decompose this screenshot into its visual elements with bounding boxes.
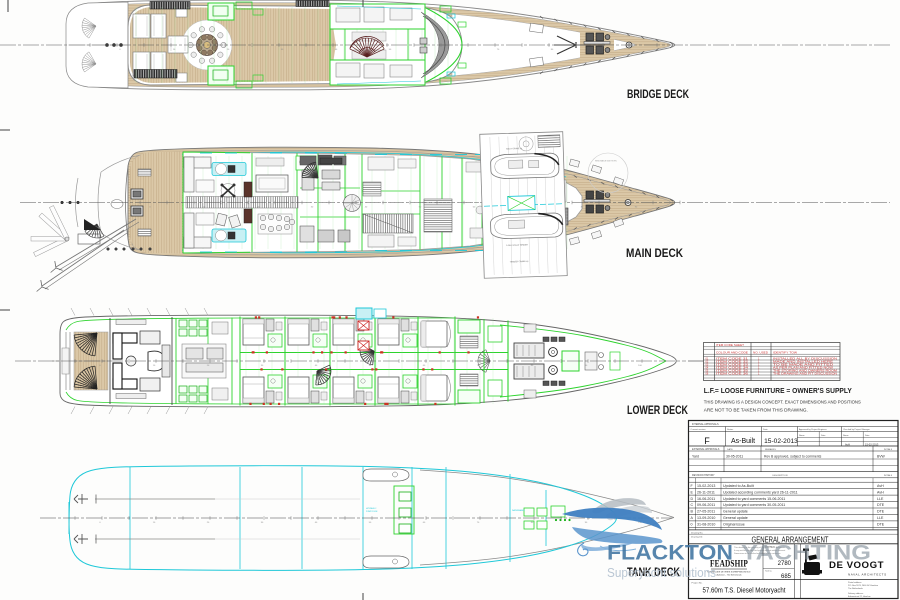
svg-text:Approved by Project Engineer: Approved by Project Engineer — [799, 428, 827, 431]
svg-text:Status: Status — [727, 428, 734, 431]
svg-text:Edisonstraat 22, Haarlem: Edisonstraat 22, Haarlem — [848, 595, 871, 598]
svg-text:13-09-2010: 13-09-2010 — [697, 516, 715, 520]
svg-text:INITIALS: INITIALS — [884, 474, 893, 477]
svg-text:WATERMAKER: WATERMAKER — [512, 509, 525, 512]
svg-text:Postal address:: Postal address: — [848, 581, 862, 584]
svg-text:Rev B approved, subject to com: Rev B approved, subject to comments — [764, 455, 822, 459]
svg-text:57.60m T.S. Diesel Motoryacht: 57.60m T.S. Diesel Motoryacht — [703, 586, 787, 595]
svg-text:D: D — [691, 497, 694, 501]
svg-text:Original issue: Original issue — [723, 523, 745, 527]
svg-text:Yard: Yard — [692, 455, 699, 459]
svg-text:L.F.= LOOSE FURNITURE = OWNER': L.F.= LOOSE FURNITURE = OWNER'S SUPPLY — [704, 386, 852, 395]
svg-text:DESCRIPTION: DESCRIPTION — [773, 475, 788, 477]
svg-text:30-05-2011: 30-05-2011 — [726, 455, 743, 459]
svg-text:Drawing title: Drawing title — [691, 535, 703, 538]
svg-text:REMOVABLE SIDE HORN: REMOVABLE SIDE HORN — [595, 160, 617, 163]
svg-text:15-02-2013: 15-02-2013 — [764, 438, 798, 445]
svg-text:AvH: AvH — [877, 490, 884, 494]
svg-text:THIS DRAWING IS A DESIGN CONCE: THIS DRAWING IS A DESIGN CONCEPT. EXACT … — [704, 399, 861, 404]
svg-text:Project No.: Project No. — [692, 582, 703, 585]
svg-text:Drawing No.: Drawing No. — [691, 531, 703, 534]
svg-text:Updated to yard comments 15-06: Updated to yard comments 15-06-2011 — [723, 497, 785, 501]
svg-text:The Netherlands: The Netherlands — [848, 587, 863, 590]
svg-text:0: 0 — [691, 523, 693, 527]
svg-text:ITEM CODE SHEET: ITEM CODE SHEET — [716, 343, 744, 347]
svg-text:ARE NOT TO BE TAKEN FROM THIS: ARE NOT TO BE TAKEN FROM THIS DRAWING. — [704, 408, 808, 413]
svg-text:LLE: LLE — [877, 516, 884, 520]
svg-text:IDENTIFY TOW: IDENTIFY TOW — [773, 352, 798, 355]
svg-text:FLACKTON: FLACKTON — [607, 541, 733, 565]
svg-text:DTE: DTE — [877, 510, 885, 514]
svg-text:EXTERNAL APPROVALS: EXTERNAL APPROVALS — [692, 448, 720, 451]
svg-text:LOWER DECK: LOWER DECK — [627, 405, 689, 417]
svg-text:Name: Name — [799, 435, 805, 437]
svg-text:DTE: DTE — [877, 503, 885, 507]
svg-text:MAIN DECK: MAIN DECK — [626, 248, 684, 260]
svg-text:LLE: LLE — [877, 497, 884, 501]
svg-text:P.O. Box 5123, 2600 GC Haarlem: P.O. Box 5123, 2600 GC Haarlem — [848, 585, 878, 587]
svg-text:16-06-2011: 16-06-2011 — [697, 497, 715, 501]
svg-text:BRIDGE DECK: BRIDGE DECK — [627, 89, 690, 101]
svg-text:ITEM CODE 36: ITEM CODE 36 — [716, 373, 749, 376]
svg-text:Name: Name — [843, 435, 849, 437]
svg-text:Superyacht solutions: Superyacht solutions — [607, 565, 716, 580]
svg-text:INITIALS: INITIALS — [884, 448, 893, 451]
svg-text:As-Built: As-Built — [731, 438, 755, 445]
svg-text:Aalsmeer - The Netherlands: Aalsmeer - The Netherlands — [717, 574, 742, 577]
svg-text:Current version: Current version — [691, 428, 707, 431]
svg-text:31-08-2010: 31-08-2010 — [697, 523, 715, 527]
svg-text:HYDRAULIC: HYDRAULIC — [366, 507, 377, 510]
svg-text:Yard no.: Yard no. — [765, 570, 772, 573]
svg-text:THE DRAWING AND FIT DISCUSSION: THE DRAWING AND FIT DISCUSSION — [773, 373, 837, 376]
svg-text:26-11-2011: 26-11-2011 — [697, 490, 715, 494]
svg-text:General update: General update — [723, 516, 748, 520]
svg-text:PUMP ROOM: PUMP ROOM — [366, 511, 378, 513]
svg-text:27-05-2011: 27-05-2011 — [697, 510, 715, 514]
svg-text:INTERNAL APPROVALS: INTERNAL APPROVALS — [692, 423, 719, 426]
svg-text:C: C — [691, 503, 694, 507]
svg-text:AvH: AvH — [877, 484, 884, 488]
svg-text:BVW: BVW — [877, 455, 886, 459]
svg-text:REMARKS: REMARKS — [765, 448, 776, 451]
svg-text:REVISION HISTORY: REVISION HISTORY — [692, 474, 715, 477]
svg-text:09-06-2011: 09-06-2011 — [697, 503, 715, 507]
svg-text:General update: General update — [723, 510, 748, 514]
svg-text:YACHTING: YACHTING — [741, 541, 871, 565]
svg-text:NO. USED: NO. USED — [753, 352, 768, 355]
svg-text:Updated to As-Built: Updated to As-Built — [723, 484, 754, 488]
svg-text:Checked by Project Manager: Checked by Project Manager — [843, 428, 870, 431]
svg-text:15-02-2013: 15-02-2013 — [697, 484, 715, 488]
svg-text:F: F — [704, 436, 710, 446]
svg-text:MAST CRANE up: MAST CRANE up — [506, 147, 523, 151]
svg-text:NAVAL ARCHITECTS: NAVAL ARCHITECTS — [848, 573, 887, 577]
svg-text:685: 685 — [781, 574, 792, 580]
svg-text:DTE: DTE — [877, 523, 885, 527]
svg-text:Updated according comments yar: Updated according comments yard 26-11-20… — [723, 490, 798, 494]
svg-text:TENDER CRANE up: TENDER CRANE up — [510, 260, 530, 264]
svg-text:Delivery address:: Delivery address: — [848, 593, 864, 595]
svg-text:DATE: DATE — [727, 448, 733, 451]
svg-text:COLOUR AND CODE: COLOUR AND CODE — [716, 352, 748, 355]
svg-text:Date: Date — [763, 428, 768, 431]
svg-text:Updated to yard comments 30-05: Updated to yard comments 30-05-2011 — [723, 503, 785, 507]
